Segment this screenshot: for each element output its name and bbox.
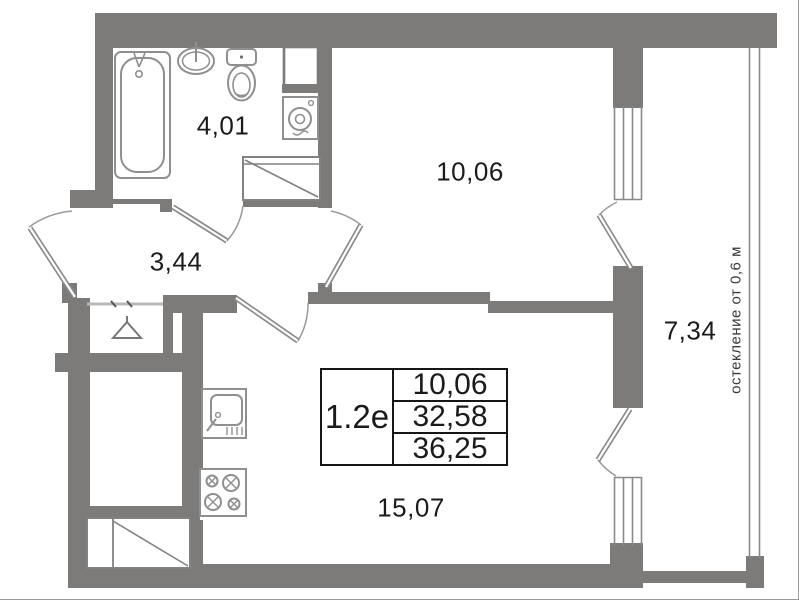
bedroom-window [615, 106, 642, 200]
wall-balcony-pillar-mid [613, 266, 643, 408]
wall-bath-door-jamb [160, 199, 172, 212]
wall-shaft-right [190, 520, 203, 570]
bathroom-area-label: 4,01 [197, 111, 250, 142]
wall-top [95, 13, 777, 48]
toilet-icon [227, 49, 256, 101]
wall-hall-block-left [163, 295, 173, 357]
wall-balcony-bottom [643, 571, 747, 583]
floor-plan-page: 4,01 10,06 3,44 7,34 15,07 остекление от… [0, 0, 799, 600]
hallway-area-label: 3,44 [150, 247, 203, 278]
bedroom-balcony-door [599, 202, 631, 268]
balcony-glazing [750, 48, 760, 558]
wall-balcony-pillar-top [613, 44, 643, 108]
washing-machine-icon [283, 97, 318, 139]
living-room-window [615, 477, 642, 546]
wall-balcony-corner-post [746, 556, 764, 588]
area-summary-table: 1.2e 10,06 32,58 36,25 [320, 368, 508, 466]
kitchen-sink-icon [202, 389, 246, 438]
wall-room-divider-a [308, 292, 490, 304]
entrance-door [29, 211, 75, 297]
kitchen-living-area-label: 15,07 [377, 493, 445, 524]
wall-room-divider-b [488, 301, 613, 313]
bathroom-door [173, 206, 243, 241]
bathtub-icon [115, 52, 170, 178]
apartment-area-value: 32,58 [394, 400, 506, 432]
stove-icon [200, 469, 246, 516]
wall-left-upper [95, 13, 113, 192]
duct-hatch-bathroom-icon [243, 157, 320, 200]
living-area-value: 10,06 [394, 370, 506, 400]
balcony-area-label: 7,34 [664, 316, 717, 347]
area-values-column: 10,06 32,58 36,25 [394, 370, 506, 464]
living-room-door [236, 298, 308, 341]
glazing-annotation: остекление от 0,6 м [728, 246, 745, 394]
wardrobe-hanger-icon [87, 301, 163, 338]
living-room-balcony-door [598, 409, 630, 476]
wall-entry-stub [70, 190, 113, 208]
total-area-value: 36,25 [394, 432, 506, 464]
unit-type-cell: 1.2e [322, 370, 394, 464]
duct-hatch-kitchen-icon [87, 518, 190, 568]
wall-balcony-block-bottom [610, 543, 643, 573]
vent-shaft-icon [282, 47, 318, 93]
bedroom-door [326, 211, 361, 287]
bedroom-area-label: 10,06 [436, 157, 504, 188]
